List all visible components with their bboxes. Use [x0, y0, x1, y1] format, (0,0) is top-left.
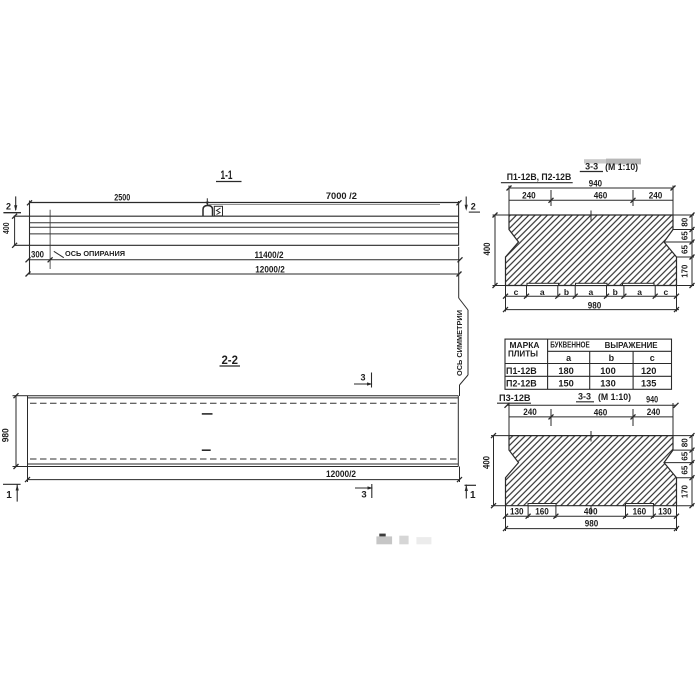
svg-text:12000/2: 12000/2 — [255, 264, 285, 275]
svg-text:2: 2 — [471, 202, 476, 212]
svg-text:b: b — [564, 287, 569, 297]
svg-text:ОСЬ СИММЕТРИИ: ОСЬ СИММЕТРИИ — [455, 310, 464, 376]
svg-text:240: 240 — [647, 407, 661, 418]
svg-text:150: 150 — [558, 379, 574, 390]
svg-text:b: b — [609, 353, 615, 363]
svg-text:135: 135 — [641, 379, 657, 390]
svg-text:П1-12В: П1-12В — [506, 366, 537, 376]
svg-text:65: 65 — [680, 245, 690, 254]
svg-text:1-1: 1-1 — [221, 168, 233, 182]
svg-text:460: 460 — [594, 407, 608, 418]
svg-text:ВЫРАЖЕНИЕ: ВЫРАЖЕНИЕ — [605, 341, 659, 350]
svg-text:130: 130 — [658, 506, 672, 517]
svg-text:980: 980 — [1, 428, 11, 442]
svg-text:c: c — [664, 287, 669, 297]
svg-text:65: 65 — [680, 231, 690, 240]
svg-text:65: 65 — [680, 465, 690, 474]
svg-text:100: 100 — [600, 366, 616, 377]
svg-text:240: 240 — [523, 407, 537, 418]
svg-text:a: a — [589, 287, 594, 297]
svg-text:3: 3 — [360, 373, 365, 383]
svg-text:300: 300 — [31, 250, 44, 260]
svg-text:ОСЬ ОПИРАНИЯ: ОСЬ ОПИРАНИЯ — [65, 249, 125, 258]
svg-text:130: 130 — [510, 506, 524, 517]
svg-text:2500: 2500 — [114, 193, 130, 204]
svg-text:940: 940 — [589, 178, 602, 189]
svg-text:2-2: 2-2 — [221, 353, 238, 367]
svg-text:240: 240 — [649, 190, 663, 201]
svg-text:12000/2: 12000/2 — [326, 469, 356, 480]
svg-text:БУКВЕННОЕ: БУКВЕННОЕ — [550, 340, 590, 349]
svg-text:240: 240 — [522, 190, 536, 201]
svg-text:1: 1 — [470, 490, 476, 501]
svg-text:940: 940 — [646, 394, 658, 405]
svg-text:160: 160 — [633, 506, 647, 517]
svg-text:80: 80 — [680, 217, 690, 226]
svg-text:65: 65 — [680, 452, 690, 461]
svg-text:7000 /2: 7000 /2 — [326, 191, 357, 202]
svg-text:П3-12В: П3-12В — [499, 393, 531, 403]
svg-text:3: 3 — [361, 490, 366, 501]
svg-text:3-3: 3-3 — [585, 162, 598, 172]
svg-text:ПЛИТЫ: ПЛИТЫ — [508, 349, 538, 359]
svg-text:11400/2: 11400/2 — [255, 250, 284, 261]
svg-text:П2-12В: П2-12В — [506, 379, 537, 389]
svg-text:400: 400 — [482, 243, 492, 256]
svg-text:170: 170 — [680, 485, 690, 498]
svg-text:b: b — [613, 287, 618, 297]
svg-text:170: 170 — [680, 264, 690, 277]
svg-text:2: 2 — [6, 201, 11, 211]
svg-text:a: a — [540, 287, 545, 297]
svg-text:160: 160 — [535, 506, 549, 517]
svg-text:(М 1:10): (М 1:10) — [598, 392, 631, 402]
svg-text:980: 980 — [585, 519, 599, 530]
svg-text:3-3: 3-3 — [578, 392, 591, 402]
svg-text:400: 400 — [481, 456, 491, 469]
svg-text:400: 400 — [584, 506, 598, 517]
svg-text:c: c — [514, 287, 519, 297]
svg-text:П1-12В, П2-12В: П1-12В, П2-12В — [507, 172, 572, 182]
svg-text:980: 980 — [588, 300, 602, 311]
svg-text:80: 80 — [680, 438, 690, 447]
svg-text:180: 180 — [558, 366, 574, 377]
svg-text:400: 400 — [1, 222, 11, 234]
svg-text:120: 120 — [641, 366, 657, 377]
svg-text:460: 460 — [594, 191, 608, 202]
svg-text:c: c — [650, 353, 655, 363]
svg-text:a: a — [637, 287, 642, 297]
svg-text:1: 1 — [6, 490, 12, 501]
svg-text:130: 130 — [600, 379, 616, 390]
svg-text:(М 1:10): (М 1:10) — [605, 162, 638, 172]
